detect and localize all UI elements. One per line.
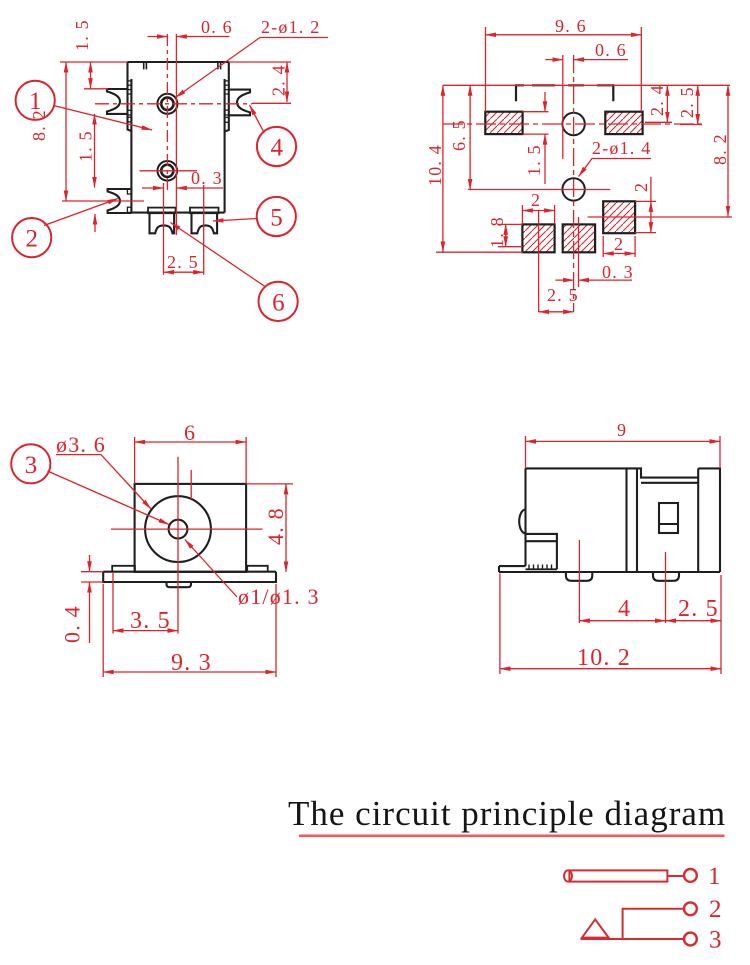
svg-text:9: 9 — [617, 420, 627, 440]
svg-text:2. 4: 2. 4 — [647, 84, 667, 116]
svg-text:2: 2 — [614, 234, 624, 254]
svg-text:8. 2: 8. 2 — [710, 133, 730, 165]
svg-text:2. 5: 2. 5 — [678, 596, 719, 622]
svg-text:1. 5: 1. 5 — [524, 144, 544, 176]
svg-text:2. 5: 2. 5 — [677, 86, 697, 118]
svg-text:1. 8: 1. 8 — [487, 216, 507, 248]
svg-text:4: 4 — [271, 135, 284, 162]
svg-text:0. 6: 0. 6 — [595, 40, 627, 60]
svg-text:9. 3: 9. 3 — [171, 650, 212, 676]
svg-text:5: 5 — [270, 205, 283, 232]
svg-text:2: 2 — [26, 226, 39, 253]
svg-text:10. 2: 10. 2 — [577, 645, 631, 671]
svg-text:6: 6 — [272, 289, 285, 316]
svg-text:1: 1 — [29, 88, 42, 115]
svg-text:0. 3: 0. 3 — [602, 262, 634, 282]
svg-text:3: 3 — [709, 927, 722, 954]
svg-text:2: 2 — [709, 896, 722, 923]
svg-text:2. 5: 2. 5 — [167, 252, 199, 272]
svg-text:0. 3: 0. 3 — [191, 168, 223, 188]
svg-text:10. 4: 10. 4 — [425, 144, 445, 186]
svg-text:3: 3 — [25, 452, 38, 479]
svg-text:2. 5: 2. 5 — [547, 285, 579, 305]
svg-text:9. 6: 9. 6 — [555, 16, 587, 36]
svg-text:2: 2 — [531, 190, 541, 210]
svg-text:1. 5: 1. 5 — [72, 19, 92, 51]
svg-text:6: 6 — [184, 420, 196, 445]
svg-text:4: 4 — [618, 596, 631, 622]
svg-text:1: 1 — [708, 863, 721, 890]
svg-text:0. 6: 0. 6 — [201, 17, 233, 37]
svg-text:2: 2 — [631, 182, 651, 192]
svg-text:The circuit principle diagram: The circuit principle diagram — [288, 794, 726, 833]
svg-text:1. 5: 1. 5 — [76, 130, 96, 162]
svg-text:2. 4: 2. 4 — [269, 64, 289, 96]
svg-text:3. 5: 3. 5 — [130, 608, 171, 634]
svg-text:2-ø1. 2: 2-ø1. 2 — [261, 17, 320, 37]
svg-text:6. 5: 6. 5 — [449, 119, 469, 151]
svg-text:2-ø1. 4: 2-ø1. 4 — [592, 138, 651, 158]
svg-text:ø1/ø1. 3: ø1/ø1. 3 — [238, 584, 320, 609]
svg-text:ø3. 6: ø3. 6 — [56, 432, 106, 457]
svg-text:0. 4: 0. 4 — [60, 605, 85, 643]
svg-text:4. 8: 4. 8 — [263, 507, 288, 545]
